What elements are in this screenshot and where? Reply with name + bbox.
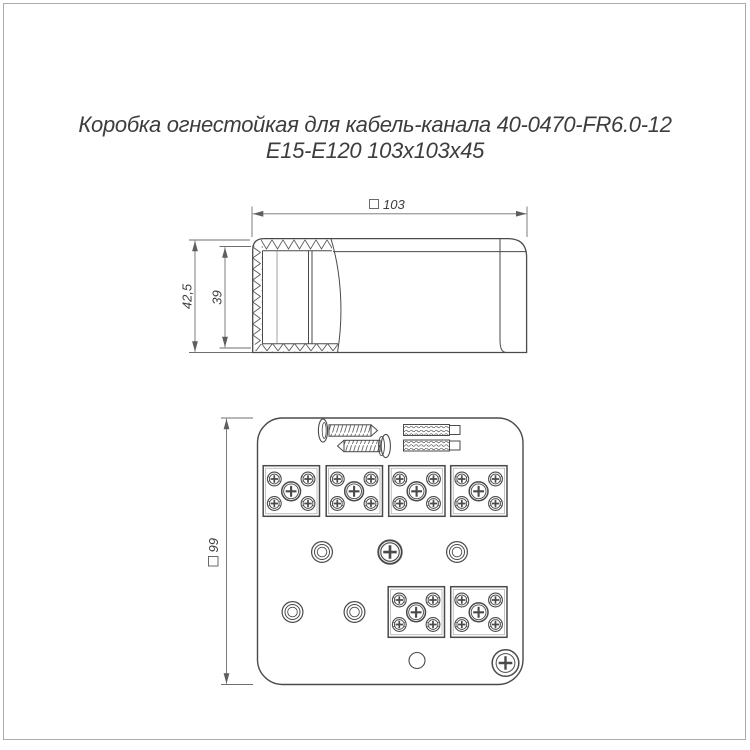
terminal-block xyxy=(451,466,507,517)
center-screw xyxy=(378,540,402,564)
dim-outer-height-label: 42,5 xyxy=(180,283,195,309)
mounting-hole xyxy=(312,542,333,563)
dim-size-label: 99 xyxy=(206,538,221,552)
square-symbol xyxy=(370,200,379,209)
mounting-hole xyxy=(282,602,303,623)
mounting-hole xyxy=(447,542,468,563)
terminal-block xyxy=(326,466,382,517)
corner-fixing-screw xyxy=(492,650,519,677)
dimension-inner-height: 39 xyxy=(210,247,252,349)
cap-section-hatching xyxy=(253,239,341,352)
drawing-title: Коробка огнестойкая для кабель-канала 40… xyxy=(0,112,750,163)
dim-inner-height-label: 39 xyxy=(210,290,225,304)
small-hole xyxy=(409,653,425,669)
mounting-screw-left xyxy=(318,419,377,442)
box-profile xyxy=(253,239,527,353)
dim-width-label: 103 xyxy=(383,197,405,212)
mounting-screw-right xyxy=(338,434,391,457)
title-line-1: Коробка огнестойкая для кабель-канала 40… xyxy=(0,112,750,138)
wall-anchor-bottom xyxy=(404,440,461,451)
terminal-block xyxy=(451,587,507,638)
terminal-block xyxy=(388,587,444,638)
terminal-block xyxy=(263,466,319,517)
bottom-view-drawing: 99 xyxy=(195,405,540,705)
wall-anchor-top xyxy=(404,425,461,436)
square-symbol xyxy=(209,557,219,567)
mounting-hole xyxy=(344,602,365,623)
side-view-drawing: 103 42,5 xyxy=(175,185,560,370)
title-line-2: Е15-Е120 103х103х45 xyxy=(0,138,750,164)
dimension-size: 99 xyxy=(206,418,253,685)
terminal-block xyxy=(389,466,445,517)
dimension-width: 103 xyxy=(252,197,527,237)
